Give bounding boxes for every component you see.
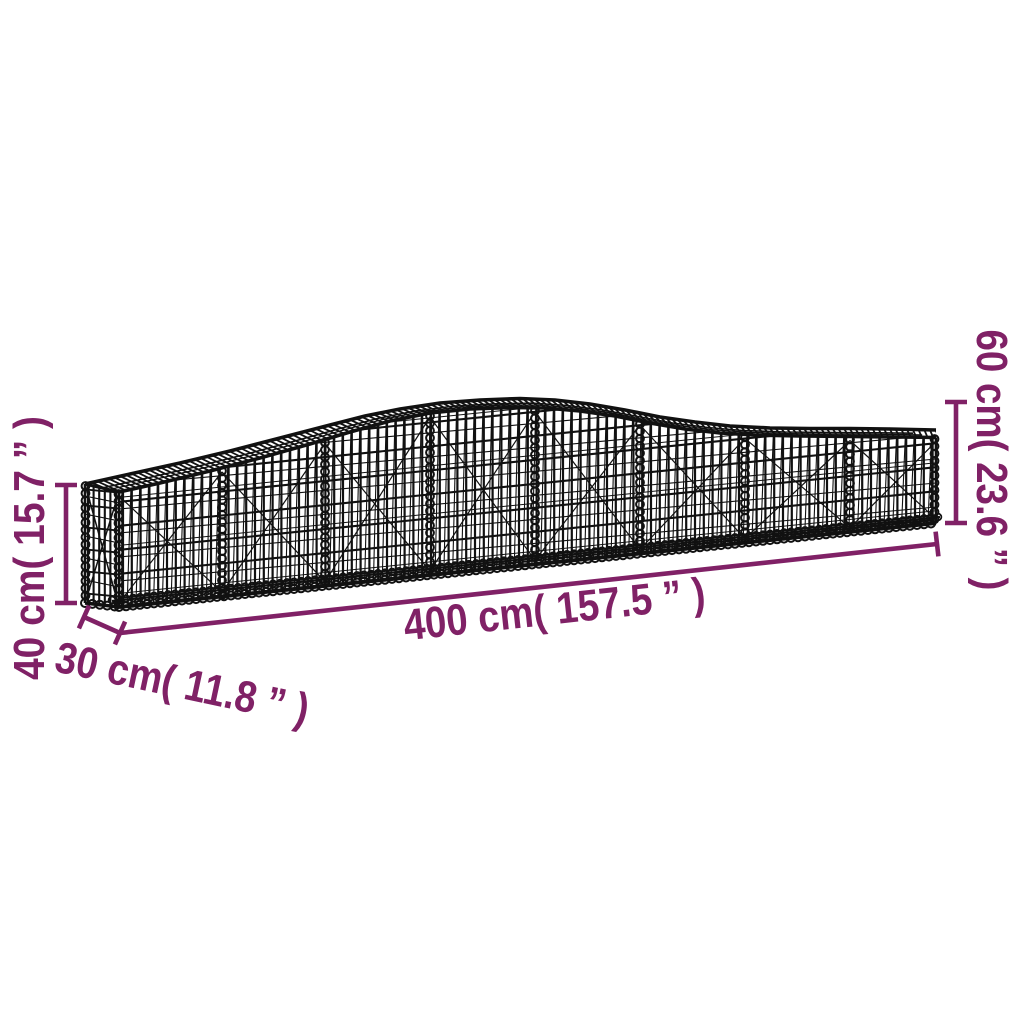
svg-text:60 cm( 23.6 ” ): 60 cm( 23.6 ” ) [967,330,1016,591]
svg-text:40 cm( 15.7 ” ): 40 cm( 15.7 ” ) [5,416,54,680]
